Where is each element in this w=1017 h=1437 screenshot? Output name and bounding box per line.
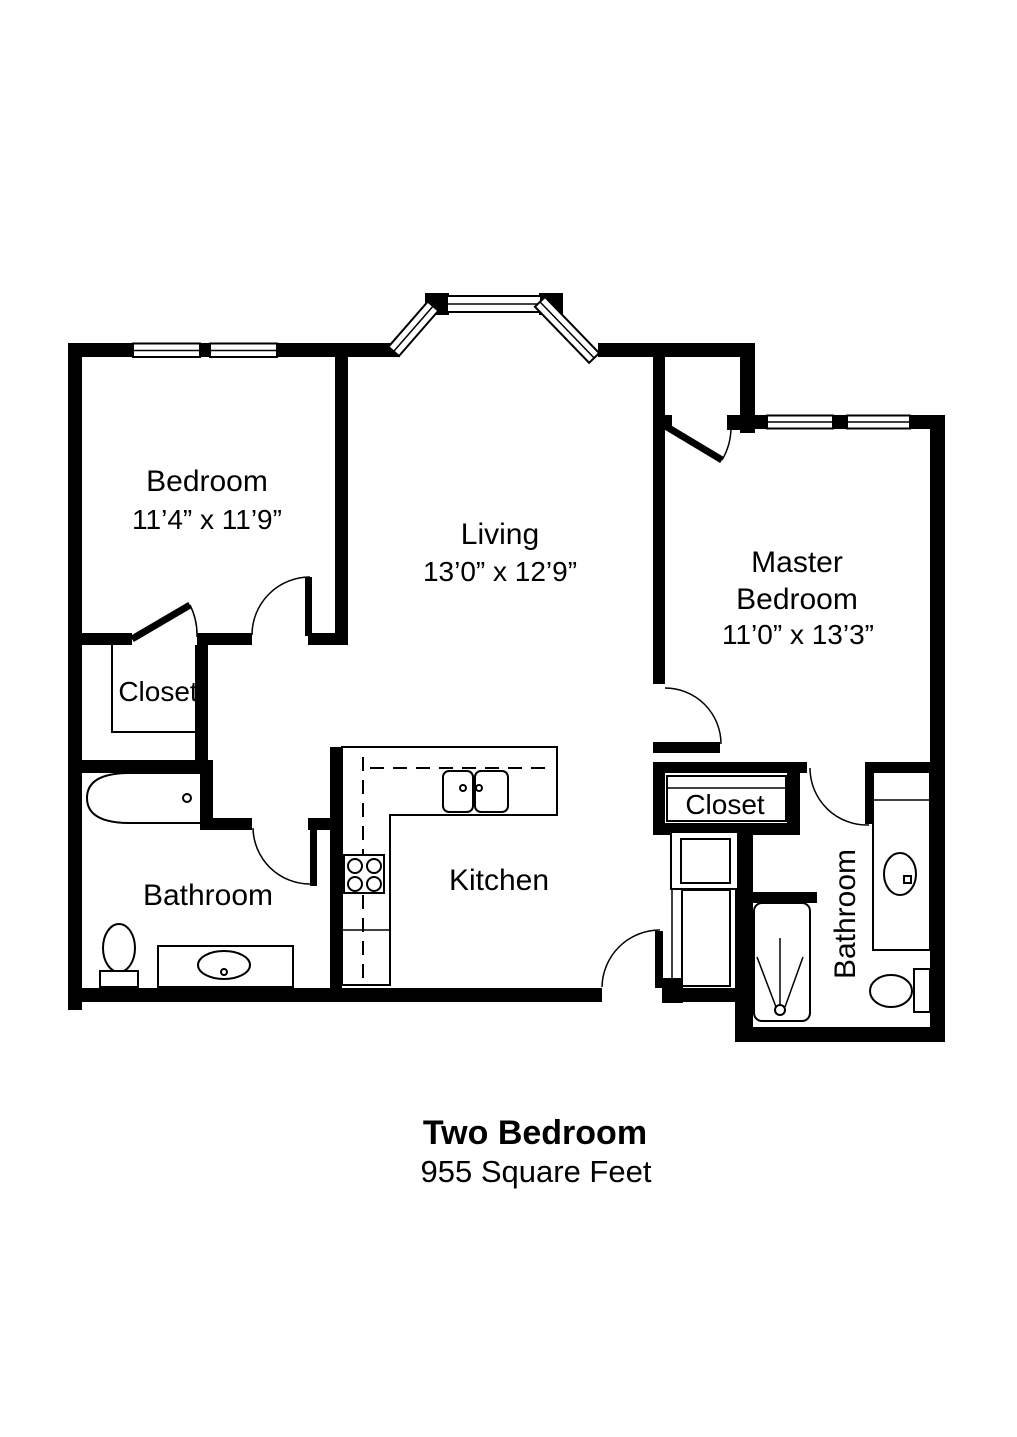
master-vanity-sink-icon [873,772,930,950]
bathroom-vanity-sink-icon [158,946,293,987]
bedroom-window-2 [210,344,277,358]
windows [133,296,910,429]
floor-plan-page: Bedroom 11’4” x 11’9” Living 13’0” x 12’… [0,0,1017,1437]
bedroom-dimensions: 11’4” x 11’9” [132,504,282,535]
bedroom-label: Bedroom [146,465,268,498]
closet-left-label: Closet [118,676,198,707]
kitchen-label: Kitchen [449,864,549,897]
plan-title-block: Two Bedroom 955 Square Feet [421,1114,652,1189]
master-bedroom-label-line1: Master [751,546,843,579]
master-entry-door [667,427,731,460]
master-bedroom-label-line2: Bedroom [736,583,858,616]
bedroom-door [252,577,312,636]
living-label: Living [461,518,539,551]
living-dimensions: 13’0” x 12’9” [423,556,577,587]
kitchen-sink-icon [443,771,508,812]
floor-plan: Bedroom 11’4” x 11’9” Living 13’0” x 12’… [0,0,1017,1437]
closet-left-door [132,605,197,639]
utility-appliance-icon [672,890,730,986]
stove-icon [344,855,384,893]
plan-title: Two Bedroom [423,1114,647,1152]
master-bedroom-window-2 [847,416,910,429]
fixtures [87,645,930,1021]
bedroom-window-1 [133,344,200,358]
plan-subtitle: 955 Square Feet [421,1154,652,1189]
entry-door [602,930,663,988]
bay-window-center [447,296,541,312]
master-bedroom-door [665,688,721,744]
shower-icon [754,903,810,1021]
bay-window-right [535,297,599,363]
washer-icon [671,832,738,889]
bathroom-left-door [253,828,317,886]
toilet-icon [100,924,138,987]
master-bedroom-dimensions: 11’0” x 13’3” [722,619,874,650]
master-bathroom-door [810,767,873,825]
bathroom-right-label: Bathroom [829,849,862,979]
master-bedroom-window-1 [767,416,833,429]
bathtub-icon [87,773,201,823]
master-toilet-icon [870,969,930,1012]
bathroom-left-label: Bathroom [143,879,273,912]
bay-window-left [388,302,438,356]
closet-right-label: Closet [685,789,765,820]
